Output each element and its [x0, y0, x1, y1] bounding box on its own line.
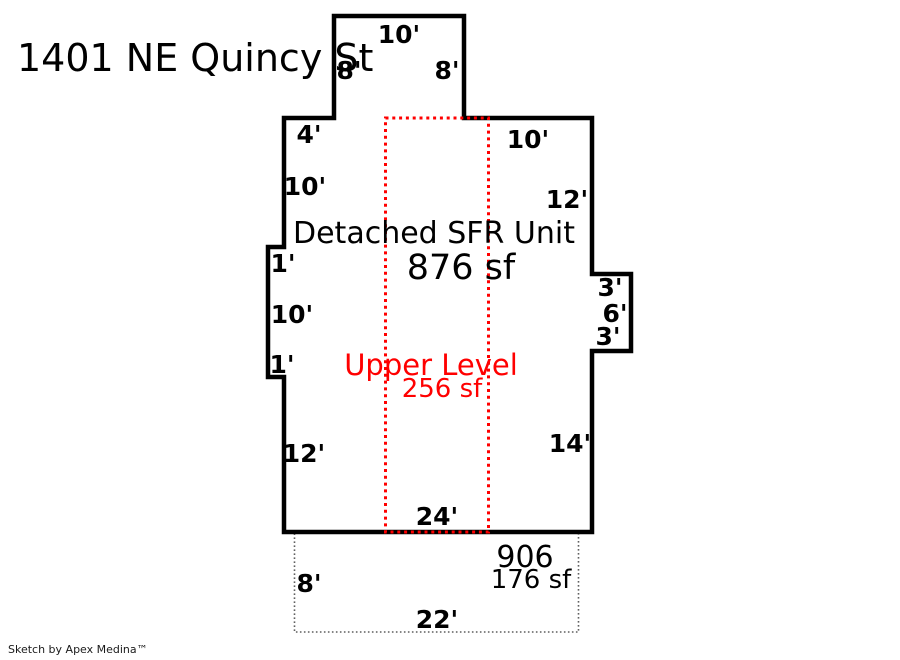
dim-lower-level-bottom: 22' [416, 605, 458, 634]
dim-left-edge-upper: 10' [284, 172, 326, 201]
sketch-title: 1401 NE Quincy St [17, 36, 373, 80]
dim-lower-level-left-side: 8' [296, 569, 321, 598]
dim-left-notch-top: 1' [270, 249, 295, 278]
upper-level-dotted-outline [386, 118, 489, 532]
dim-top-edge-left: 4' [296, 120, 321, 149]
dim-right-bump-top: 3' [597, 273, 622, 302]
dim-left-edge-lower: 12' [283, 439, 325, 468]
dim-right-edge-lower: 14' [549, 429, 591, 458]
sketch-credit: Sketch by Apex Medina™ [8, 643, 148, 656]
main-unit-label: Detached SFR Unit [293, 216, 575, 251]
dim-top-bump-left-side: 8' [336, 56, 361, 85]
dim-left-notch-bottom: 1' [269, 350, 294, 379]
floor-plan-drawing: 1401 NE Quincy St Sketch by Apex Medina™… [0, 0, 900, 660]
dim-top-bump-width: 10' [378, 20, 420, 49]
lower-level-area: 176 sf [491, 565, 572, 595]
dim-left-notch-side: 10' [271, 300, 313, 329]
dim-bottom-edge: 24' [416, 502, 458, 531]
floor-plan-sketch: 1401 NE Quincy St Sketch by Apex Medina™… [0, 0, 900, 660]
dim-top-edge-right: 10' [507, 125, 549, 154]
dim-right-bump-bottom: 3' [595, 322, 620, 351]
dim-right-edge-upper: 12' [546, 185, 588, 214]
main-unit-area: 876 sf [407, 248, 516, 288]
upper-level-area: 256 sf [402, 374, 483, 404]
dim-top-bump-right-side: 8' [434, 56, 459, 85]
